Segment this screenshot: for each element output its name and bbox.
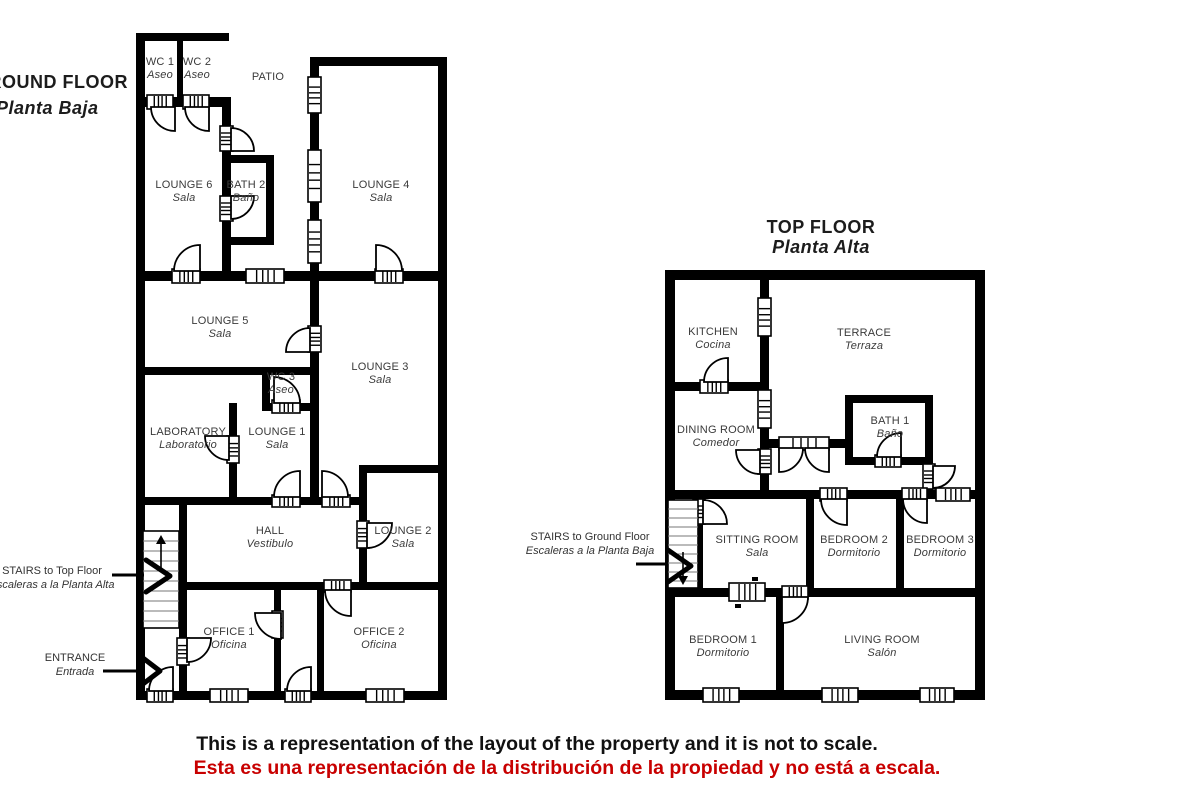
room-label-lounge6: LOUNGE 6 Sala [155, 179, 212, 205]
window-icon [703, 688, 739, 702]
room-label-dining: DINING ROOM Comedor [677, 424, 755, 450]
room-label-bedroom2: BEDROOM 2 Dormitorio [820, 534, 888, 560]
entrance-label: ENTRANCE Entrada [45, 651, 106, 679]
sliding-door-icon [735, 604, 741, 608]
room-label-lounge5: LOUNGE 5 Sala [191, 315, 248, 341]
room-name: LIVING ROOM [844, 634, 920, 647]
room-name: LABORATORY [150, 426, 226, 439]
room-subname: Dormitorio [906, 547, 974, 560]
room-label-bath1: BATH 1 Baño [871, 415, 910, 441]
room-name: OFFICE 1 [203, 626, 254, 639]
annotation-line1: STAIRS to Top Floor [0, 564, 114, 578]
room-subname: Laboratorio [150, 439, 226, 452]
disclaimer-spanish: Esta es una representación de la distrib… [194, 756, 941, 780]
door-icon [231, 128, 254, 151]
room-subname: Cocina [688, 339, 738, 352]
sliding-door-icon [752, 577, 758, 581]
disclaimer-english: This is a representation of the layout o… [196, 732, 878, 756]
room-label-bath2: BATH 2 Baño [227, 179, 266, 205]
window-icon [920, 688, 954, 702]
door-icon [821, 499, 847, 525]
room-label-bedroom3: BEDROOM 3 Dormitorio [906, 534, 974, 560]
wall [925, 395, 933, 465]
room-subname: Comedor [677, 437, 755, 450]
room-name: LOUNGE 2 [374, 525, 431, 538]
top-floor-title: TOP FLOOR [767, 216, 876, 238]
room-label-wc3: WC 3 Aseo [267, 371, 295, 397]
door-jamb-icon [729, 583, 765, 601]
room-label-office1: OFFICE 1 Oficina [203, 626, 254, 652]
room-name: BATH 2 [227, 179, 266, 192]
door-icon [185, 107, 209, 131]
room-name: LOUNGE 5 [191, 315, 248, 328]
wall [845, 395, 933, 403]
door-icon [174, 245, 200, 271]
room-label-office2: OFFICE 2 Oficina [353, 626, 404, 652]
room-subname: Oficina [353, 639, 404, 652]
room-label-lounge3: LOUNGE 3 Sala [351, 361, 408, 387]
door-icon [903, 499, 927, 523]
room-subname: Dormitorio [820, 547, 888, 560]
room-name: WC 2 [183, 56, 211, 69]
room-name: BEDROOM 3 [906, 534, 974, 547]
top-floor-subtitle: Planta Alta [772, 236, 870, 258]
door-icon [322, 471, 348, 497]
window-icon [308, 77, 321, 113]
window-icon [758, 390, 771, 428]
wall [317, 590, 324, 691]
door-icon [933, 466, 955, 488]
room-name: BEDROOM 2 [820, 534, 888, 547]
room-subname: Sala [351, 374, 408, 387]
wall [806, 499, 814, 590]
room-name: OFFICE 2 [353, 626, 404, 639]
door-icon [736, 450, 760, 474]
room-label-lounge4: LOUNGE 4 Sala [352, 179, 409, 205]
room-label-terrace: TERRACE Terraza [837, 327, 891, 353]
room-name: LOUNGE 1 [248, 426, 305, 439]
wall [665, 270, 675, 700]
door-icon [805, 448, 829, 472]
room-subname: Sala [374, 538, 431, 551]
room-name: BATH 1 [871, 415, 910, 428]
room-name: BEDROOM 1 [689, 634, 757, 647]
room-label-lounge1: LOUNGE 1 Sala [248, 426, 305, 452]
room-name: PATIO [252, 71, 284, 84]
room-subname: Baño [227, 192, 266, 205]
door-icon [376, 245, 402, 271]
room-subname: Aseo [183, 69, 211, 82]
annotation-line2: Escaleras a la Planta Baja [526, 544, 654, 558]
annotation-line2: Escaleras a la Planta Alta [0, 578, 114, 592]
annotation-line2: Entrada [45, 665, 106, 679]
room-label-bedroom1: BEDROOM 1 Dormitorio [689, 634, 757, 660]
room-label-wc1: WC 1 Aseo [146, 56, 174, 82]
door-icon [151, 107, 175, 131]
window-icon [308, 150, 321, 202]
wall [359, 465, 447, 473]
wall [438, 57, 447, 700]
window-icon [210, 689, 248, 702]
wall [975, 270, 985, 700]
stairs-to-ground-floor-label: STAIRS to Ground Floor Escaleras a la Pl… [526, 530, 654, 558]
room-label-living: LIVING ROOM Salón [844, 634, 920, 660]
room-subname: Salón [844, 647, 920, 660]
wall [310, 57, 447, 66]
ground-floor-title: GROUND FLOOR [0, 71, 128, 93]
room-subname: Oficina [203, 639, 254, 652]
wall [222, 237, 274, 245]
room-name: DINING ROOM [677, 424, 755, 437]
annotation-line1: STAIRS to Ground Floor [526, 530, 654, 544]
room-name: TERRACE [837, 327, 891, 340]
wall [896, 499, 904, 590]
wall [665, 588, 985, 597]
room-subname: Sala [352, 192, 409, 205]
room-label-kitchen: KITCHEN Cocina [688, 326, 738, 352]
door-icon [782, 597, 808, 623]
window-icon [822, 688, 858, 702]
room-subname: Sala [155, 192, 212, 205]
door-icon [703, 500, 727, 524]
room-subname: Sala [715, 547, 798, 560]
door-icon [779, 448, 803, 472]
window-icon [366, 689, 404, 702]
room-subname: Aseo [267, 384, 295, 397]
window-icon [308, 220, 321, 263]
window-icon [936, 488, 970, 501]
wall [266, 155, 274, 245]
room-name: LOUNGE 3 [351, 361, 408, 374]
room-subname: Baño [871, 428, 910, 441]
room-name: KITCHEN [688, 326, 738, 339]
room-name: WC 3 [267, 371, 295, 384]
door-icon [287, 667, 311, 691]
door-icon [274, 471, 300, 497]
room-subname: Sala [191, 328, 248, 341]
wall [184, 582, 447, 590]
room-name: WC 1 [146, 56, 174, 69]
room-name: LOUNGE 6 [155, 179, 212, 192]
room-subname: Sala [248, 439, 305, 452]
room-label-laboratory: LABORATORY Laboratorio [150, 426, 226, 452]
window-icon [758, 298, 771, 336]
annotation-line1: ENTRANCE [45, 651, 106, 665]
room-name: SITTING ROOM [715, 534, 798, 547]
wall [274, 590, 281, 691]
room-label-lounge2: LOUNGE 2 Sala [374, 525, 431, 551]
room-name: HALL [247, 525, 294, 538]
room-label-sitting: SITTING ROOM Sala [715, 534, 798, 560]
door-icon [704, 358, 728, 382]
wall [310, 283, 319, 505]
room-name: LOUNGE 4 [352, 179, 409, 192]
stairs-to-top-floor-label: STAIRS to Top Floor Escaleras a la Plant… [0, 564, 114, 592]
wall [845, 395, 853, 465]
room-subname: Terraza [837, 340, 891, 353]
window-icon [246, 269, 284, 283]
room-label-hall: HALL Vestibulo [247, 525, 294, 551]
room-label-wc2: WC 2 Aseo [183, 56, 211, 82]
wall [665, 270, 985, 280]
room-subname: Vestibulo [247, 538, 294, 551]
room-subname: Dormitorio [689, 647, 757, 660]
floor-plan-drawing [0, 0, 1200, 800]
door-icon [286, 328, 310, 352]
room-subname: Aseo [146, 69, 174, 82]
ground-floor-subtitle: Planta Baja [0, 97, 99, 119]
door-icon [255, 613, 281, 639]
room-label-patio: PATIO [252, 71, 284, 84]
door-icon [325, 590, 351, 616]
